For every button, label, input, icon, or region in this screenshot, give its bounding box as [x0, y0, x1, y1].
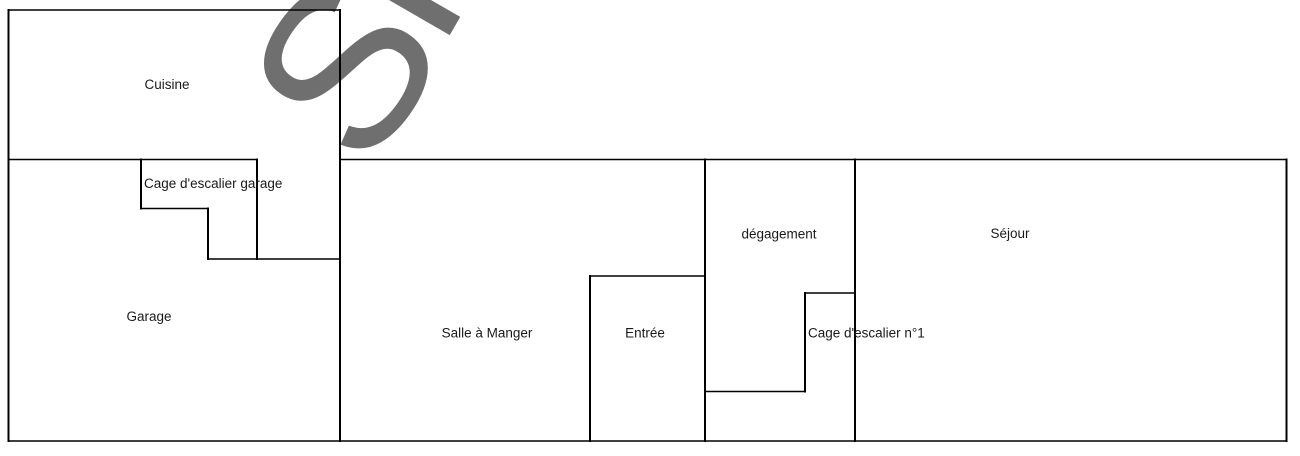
- svg-text:Séjour: Séjour: [990, 226, 1030, 241]
- svg-text:Cage d'escalier garage: Cage d'escalier garage: [144, 176, 282, 191]
- svg-text:Salle à Manger: Salle à Manger: [442, 326, 533, 341]
- svg-text:dégagement: dégagement: [741, 226, 816, 241]
- svg-text:Cuisine: Cuisine: [144, 77, 189, 92]
- svg-text:Cage d'escalier n°1: Cage d'escalier n°1: [808, 325, 925, 340]
- svg-text:Garage: Garage: [126, 309, 171, 324]
- svg-text:Entrée: Entrée: [625, 325, 665, 340]
